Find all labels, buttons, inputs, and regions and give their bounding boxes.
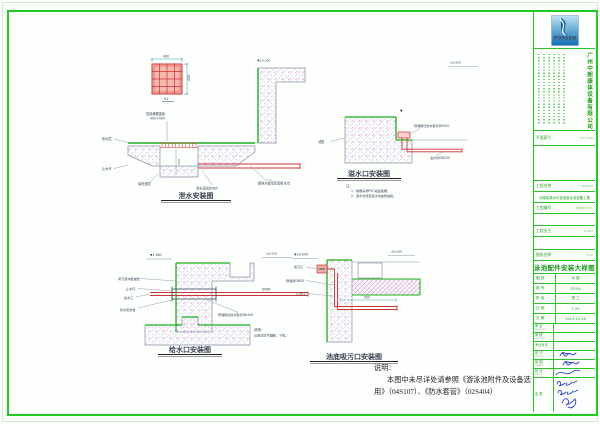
- sign-en: APPROVED: [535, 329, 553, 331]
- d1-note-2: 2、泄水管接至集水坑由泵抽吸。: [351, 193, 396, 198]
- pit-depth-dim: 450: [177, 159, 181, 165]
- signature-scribble: [557, 381, 577, 386]
- field-row: 图 号 ZP-04: [534, 283, 595, 293]
- client-en: CLIENT: [584, 230, 593, 233]
- d1-title: 泄水安装图: [179, 191, 214, 200]
- signature-scribble: [558, 390, 578, 395]
- company-cell: 广州中朗康体设备有限公司: [534, 48, 595, 130]
- project-no-en: PROJECT NO.: [576, 207, 593, 210]
- sheet-drawing-title: 泳池配件安装大样图: [534, 263, 595, 272]
- d3-title: 给水口安装图: [169, 345, 211, 354]
- possen-logo: POSSEN: [551, 15, 579, 46]
- field-label: 图 别: [534, 274, 556, 283]
- project-no-label: 工程编号: [536, 205, 551, 211]
- signatures-overlay: [533, 340, 596, 414]
- waterproof-label: 防水层: [102, 136, 112, 141]
- notes-title: 说明：: [374, 362, 532, 374]
- drawing-inlet-detail: ▼2.380 ±0.000 闭孔泡沫板嵌缝 止水环 给水口 防水密封膏 DN65…: [118, 252, 308, 357]
- key-plan-label: 平面索引: [536, 135, 551, 141]
- company-contact-text: [553, 54, 555, 124]
- suction-wall-hatch: [327, 260, 352, 342]
- field-row: 图 别 水 施: [534, 273, 595, 283]
- project-name: 河南省某水疗会馆游泳池设备工程: [539, 195, 590, 200]
- d1-note-title: 注：: [346, 183, 353, 188]
- wall-label: 池壁: [318, 139, 325, 144]
- field-label: 阶 段: [534, 294, 556, 303]
- company-contact-text: [538, 54, 540, 124]
- pipe-run-dim: 500: [364, 296, 370, 300]
- field-value: 1:25: [556, 307, 595, 311]
- supply-pipe: [150, 292, 308, 297]
- drawing-sheet: 400 400 A1 成品格栅盖板 400×400 450: [0, 0, 600, 424]
- company-contact-text: [563, 54, 565, 124]
- valve-note: 泄水底阀DN65: [196, 186, 218, 191]
- key-plan-box: [534, 145, 595, 180]
- field-value: 施 工: [556, 296, 595, 301]
- suction-port-label: 吸污口: [294, 264, 303, 269]
- drawing-title-row: 泳池配件安装大样图: [534, 260, 595, 273]
- client-value-row: [534, 236, 595, 249]
- project-no-row: 工程编号 PROJECT NO.: [534, 202, 595, 213]
- project-en: PROJECT: [582, 185, 593, 188]
- embedded-pipe-label: 预埋管DN50: [286, 278, 304, 283]
- field-value: ZP-04: [556, 287, 595, 291]
- overflow-elev-flag: ▼: [400, 109, 403, 113]
- client-row: 工程业主 CLIENT: [534, 225, 595, 236]
- grate-plan-view: 400 400 A1: [151, 55, 191, 102]
- key-plan-en: KEY PLAN: [580, 137, 593, 140]
- cushion-label: 素砼垫层: [138, 181, 151, 186]
- company-contact-text: [543, 54, 545, 124]
- signature-scribble: [563, 362, 579, 366]
- suction-elev-right: ±0.000: [391, 250, 402, 254]
- floor-slab-hatch: [128, 146, 255, 177]
- inlet-label: 给水口: [124, 295, 133, 300]
- project-no-value-row: [534, 213, 595, 225]
- logo-cell: POSSEN: [534, 12, 595, 48]
- company-name: 广州中朗康体设备有限公司: [585, 52, 593, 128]
- overflow-pipe-label: 溢水管DN100: [430, 155, 450, 160]
- title-en: TITLE: [586, 254, 593, 257]
- company-contact-text: [558, 54, 560, 124]
- field-row: 日 期 2013-10-28: [534, 313, 595, 323]
- general-notes: 说明： 本图中未尽详处请参照《游泳池附件及设备选 用》（04S107）、《防水套…: [374, 362, 532, 398]
- grate-note-2: 400×400: [150, 117, 165, 121]
- field-row: 比 例 1:25: [534, 303, 595, 313]
- field-label: 日 期: [534, 314, 556, 323]
- dim-right: 400: [187, 75, 191, 81]
- company-contact-text: [548, 54, 550, 124]
- deck-notch: [358, 263, 382, 278]
- pipe-dn-label: DN65: [262, 288, 271, 292]
- sign-row: 审 定APPROVED: [534, 323, 595, 332]
- field-value: 水 施: [556, 276, 595, 281]
- d2-title: 溢水口安装图: [348, 169, 390, 178]
- notes-line-1: 本图中未尽详处请参照《游泳池附件及设备选: [374, 374, 532, 386]
- backfill-hatch: [352, 279, 420, 295]
- d4-title: 池底吸污口安装图: [326, 352, 382, 361]
- field-value: 2013-10-28: [556, 317, 595, 321]
- pipe-note: 接排水管至泵房集水坑: [258, 181, 291, 186]
- key-plan-header: 平面索引 KEY PLAN: [534, 130, 595, 145]
- sealant-label: 防水密封膏: [120, 307, 135, 312]
- inlet-sleeve-note: 预埋刚性防水套管DN100: [218, 312, 253, 317]
- d1-note-1: 1、格栅采用PVC成品格栅；: [351, 188, 390, 193]
- plan-label: A1: [164, 97, 169, 101]
- pool-floor-hatch: [145, 317, 250, 345]
- suction-elev-left: ▼±0.000: [294, 253, 308, 257]
- field-label: 图 号: [534, 284, 556, 293]
- drawing-suction-detail: ▼±0.000 ±0.000 500 吸污口 预埋管DN50 止水环 池底吸污口…: [286, 250, 420, 364]
- inlet-elev-right: ±0.000: [266, 252, 277, 256]
- detail-drawings-canvas: 400 400 A1 成品格栅盖板 400×400 450: [0, 0, 600, 424]
- deck-elevation: ±0.000: [450, 61, 461, 65]
- drawing-overflow-detail: ▼ ±0.000 池壁 预埋刚性防水套管DN100 溢水管DN100 溢水口安装…: [318, 61, 478, 181]
- client-label: 工程业主: [536, 228, 551, 234]
- field-row: 阶 段 施 工: [534, 293, 595, 303]
- d3-note-1: 说明：: [254, 327, 264, 332]
- field-label: 比 例: [534, 304, 556, 313]
- elevation-mark: ▼±0.000: [257, 59, 271, 63]
- stop-ring-label: 止水环: [102, 166, 112, 171]
- wall-corner-hatch: [258, 68, 305, 143]
- title-label: 图纸名称: [536, 252, 551, 258]
- title-label-row: 图纸名称 TITLE: [534, 249, 595, 260]
- foam-label: 闭孔泡沫板嵌缝: [118, 276, 140, 281]
- signature-scribble: [556, 370, 580, 374]
- grate-note-1: 成品格栅盖板: [146, 111, 166, 116]
- project-label-row: 工程名称 PROJECT: [534, 180, 595, 191]
- signature-scribble: [562, 399, 576, 408]
- sleeve-note: 预埋刚性防水套管DN100: [414, 123, 449, 128]
- logo-text: POSSEN: [553, 35, 575, 41]
- project-label: 工程名称: [536, 183, 551, 189]
- d3-note-2: 位置详见平面图，下同。: [254, 333, 288, 338]
- project-name-row: 河南省某水疗会馆游泳池设备工程: [534, 191, 595, 202]
- inlet-elev-left: ▼2.380: [150, 253, 162, 257]
- inlet-stop-ring: 止水环: [126, 286, 135, 291]
- dim-top: 400: [163, 55, 169, 59]
- signature-scribble: [560, 353, 576, 357]
- suction-stop-ring: 止水环: [296, 291, 305, 296]
- notes-line-2: 用》（04S107）、《防水套管》（02S404）: [374, 386, 532, 398]
